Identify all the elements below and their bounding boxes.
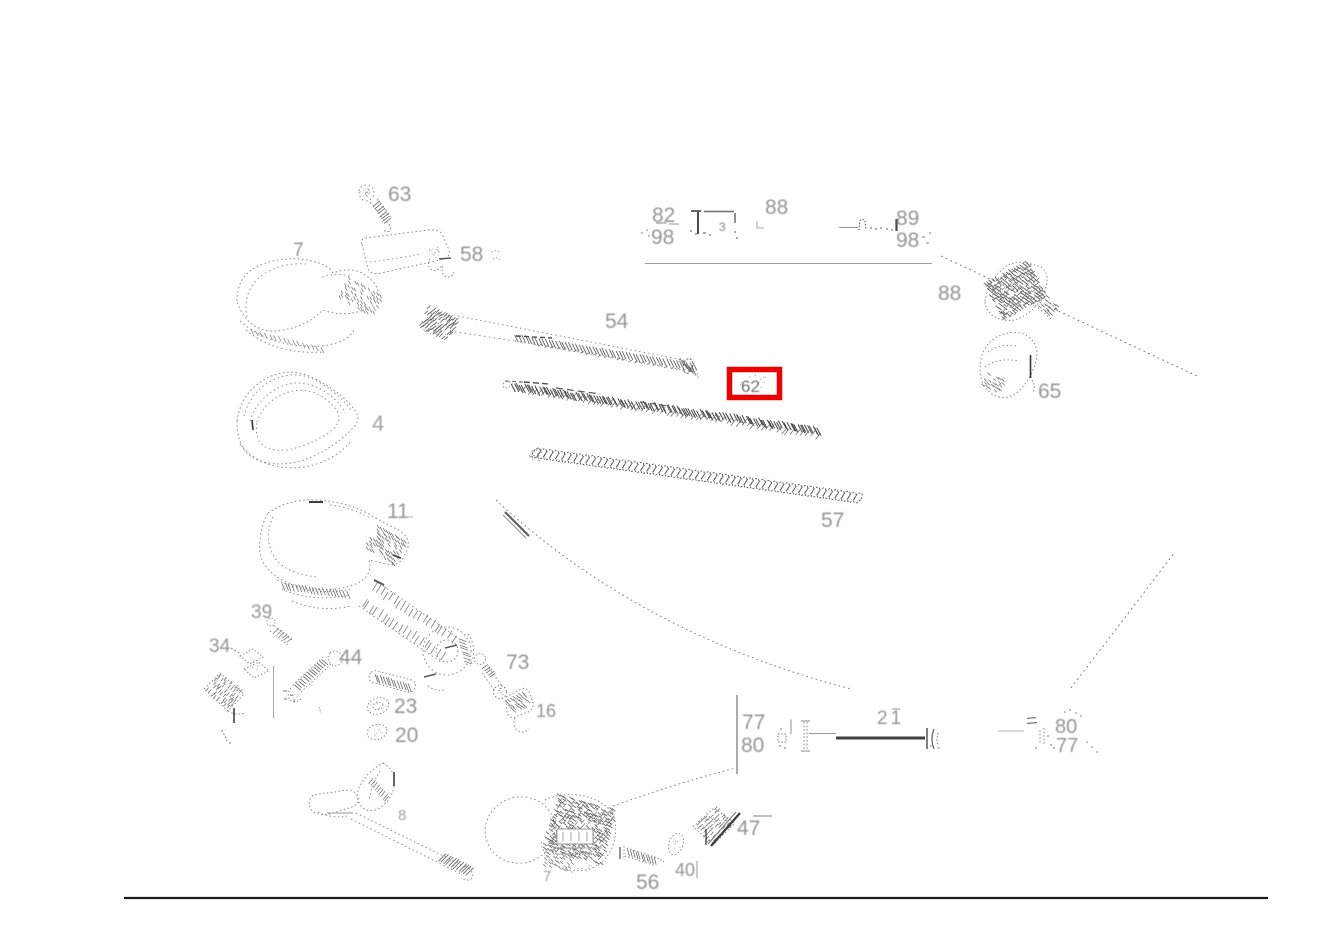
svg-text:21: 21 [877,708,904,729]
svg-text:63: 63 [388,183,411,206]
svg-text:58: 58 [460,243,483,266]
svg-text:57: 57 [821,509,844,532]
svg-text:56: 56 [636,871,659,894]
svg-text:23: 23 [394,695,417,718]
svg-text:16: 16 [536,701,556,721]
svg-text:7: 7 [293,240,304,261]
svg-text:88: 88 [765,196,788,219]
svg-text:88: 88 [938,282,961,305]
svg-text:20: 20 [395,724,418,747]
svg-text:54: 54 [605,310,629,333]
svg-text:47: 47 [737,817,760,840]
svg-text:7: 7 [543,868,551,885]
svg-text:8: 8 [398,807,406,824]
svg-text:80: 80 [741,734,764,757]
svg-text:98: 98 [896,229,919,252]
svg-text:98: 98 [651,226,674,249]
svg-text:77: 77 [742,711,765,734]
svg-text:34: 34 [209,636,231,657]
svg-text:4: 4 [372,411,384,436]
svg-text:73: 73 [506,651,529,674]
svg-text:44: 44 [339,646,363,669]
svg-text:89: 89 [896,207,919,230]
svg-text:65: 65 [1038,380,1061,403]
svg-text:3: 3 [719,220,726,234]
svg-text:39: 39 [251,602,272,623]
svg-text:62: 62 [741,377,760,396]
svg-text:11: 11 [387,500,409,523]
svg-text:40: 40 [675,860,695,880]
svg-text:77: 77 [1056,735,1078,757]
